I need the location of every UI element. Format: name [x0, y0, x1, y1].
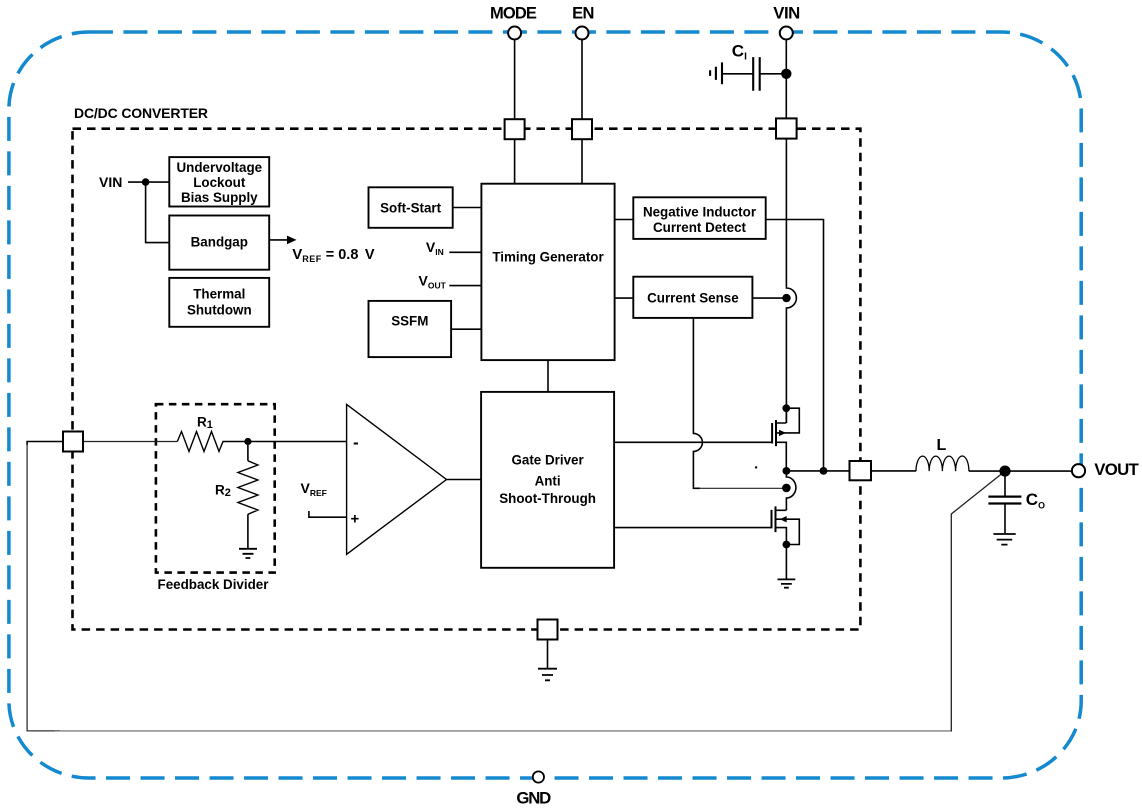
svg-text:Bias Supply: Bias Supply: [181, 190, 258, 205]
svg-text:GND: GND: [516, 788, 551, 807]
svg-text:L: L: [937, 437, 947, 454]
svg-text:VIN: VIN: [773, 3, 799, 22]
svg-text:Timing Generator: Timing Generator: [492, 250, 604, 265]
svg-text:Bandgap: Bandgap: [191, 234, 248, 249]
svg-text:Shoot-Through: Shoot-Through: [499, 491, 596, 506]
svg-text:EN: EN: [572, 4, 594, 22]
svg-text:Current Detect: Current Detect: [653, 220, 747, 235]
svg-text:Shutdown: Shutdown: [187, 303, 252, 318]
svg-text:Soft-Start: Soft-Start: [380, 201, 442, 216]
svg-text:MODE: MODE: [490, 4, 537, 22]
svg-text:SSFM: SSFM: [391, 314, 428, 329]
svg-text:Lockout: Lockout: [193, 175, 246, 190]
svg-text:+: +: [351, 511, 360, 528]
svg-text:Undervoltage: Undervoltage: [177, 160, 263, 175]
svg-text:DC/DC CONVERTER: DC/DC CONVERTER: [74, 105, 208, 121]
svg-text:Anti: Anti: [535, 473, 561, 488]
svg-text:Feedback Divider: Feedback Divider: [158, 577, 270, 592]
svg-text:Negative Inductor: Negative Inductor: [643, 205, 757, 220]
svg-text:Thermal: Thermal: [193, 287, 245, 302]
svg-text:VIN: VIN: [99, 174, 122, 190]
svg-text:Current Sense: Current Sense: [647, 291, 739, 306]
svg-text:Gate Driver: Gate Driver: [511, 452, 584, 467]
svg-text:-: -: [353, 433, 359, 452]
svg-text:VOUT: VOUT: [1094, 460, 1139, 479]
